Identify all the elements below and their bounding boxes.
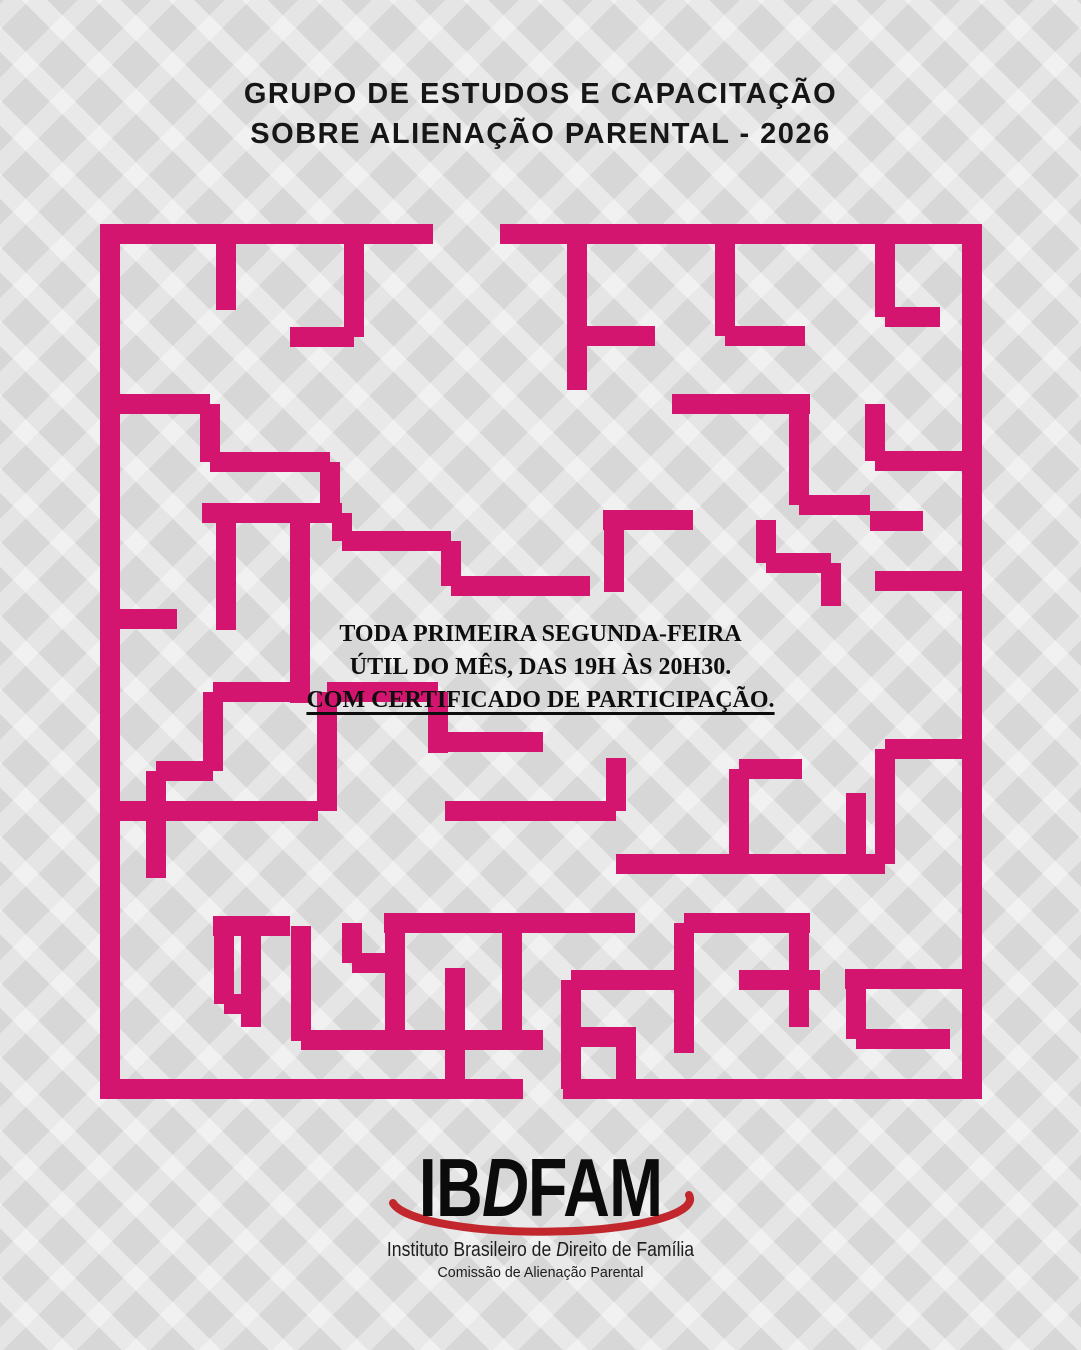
info-line-1: TODA PRIMEIRA SEGUNDA-FEIRA xyxy=(0,618,1081,651)
info-line-3: COM CERTIFICADO DE PARTICIPAÇÃO. xyxy=(0,684,1081,717)
maze-info-text: TODA PRIMEIRA SEGUNDA-FEIRA ÚTIL DO MÊS,… xyxy=(0,618,1081,717)
info-line-2: ÚTIL DO MÊS, DAS 19H ÀS 20H30. xyxy=(0,651,1081,684)
poster-background: GRUPO DE ESTUDOS E CAPACITAÇÃO SOBRE ALI… xyxy=(0,0,1081,1350)
